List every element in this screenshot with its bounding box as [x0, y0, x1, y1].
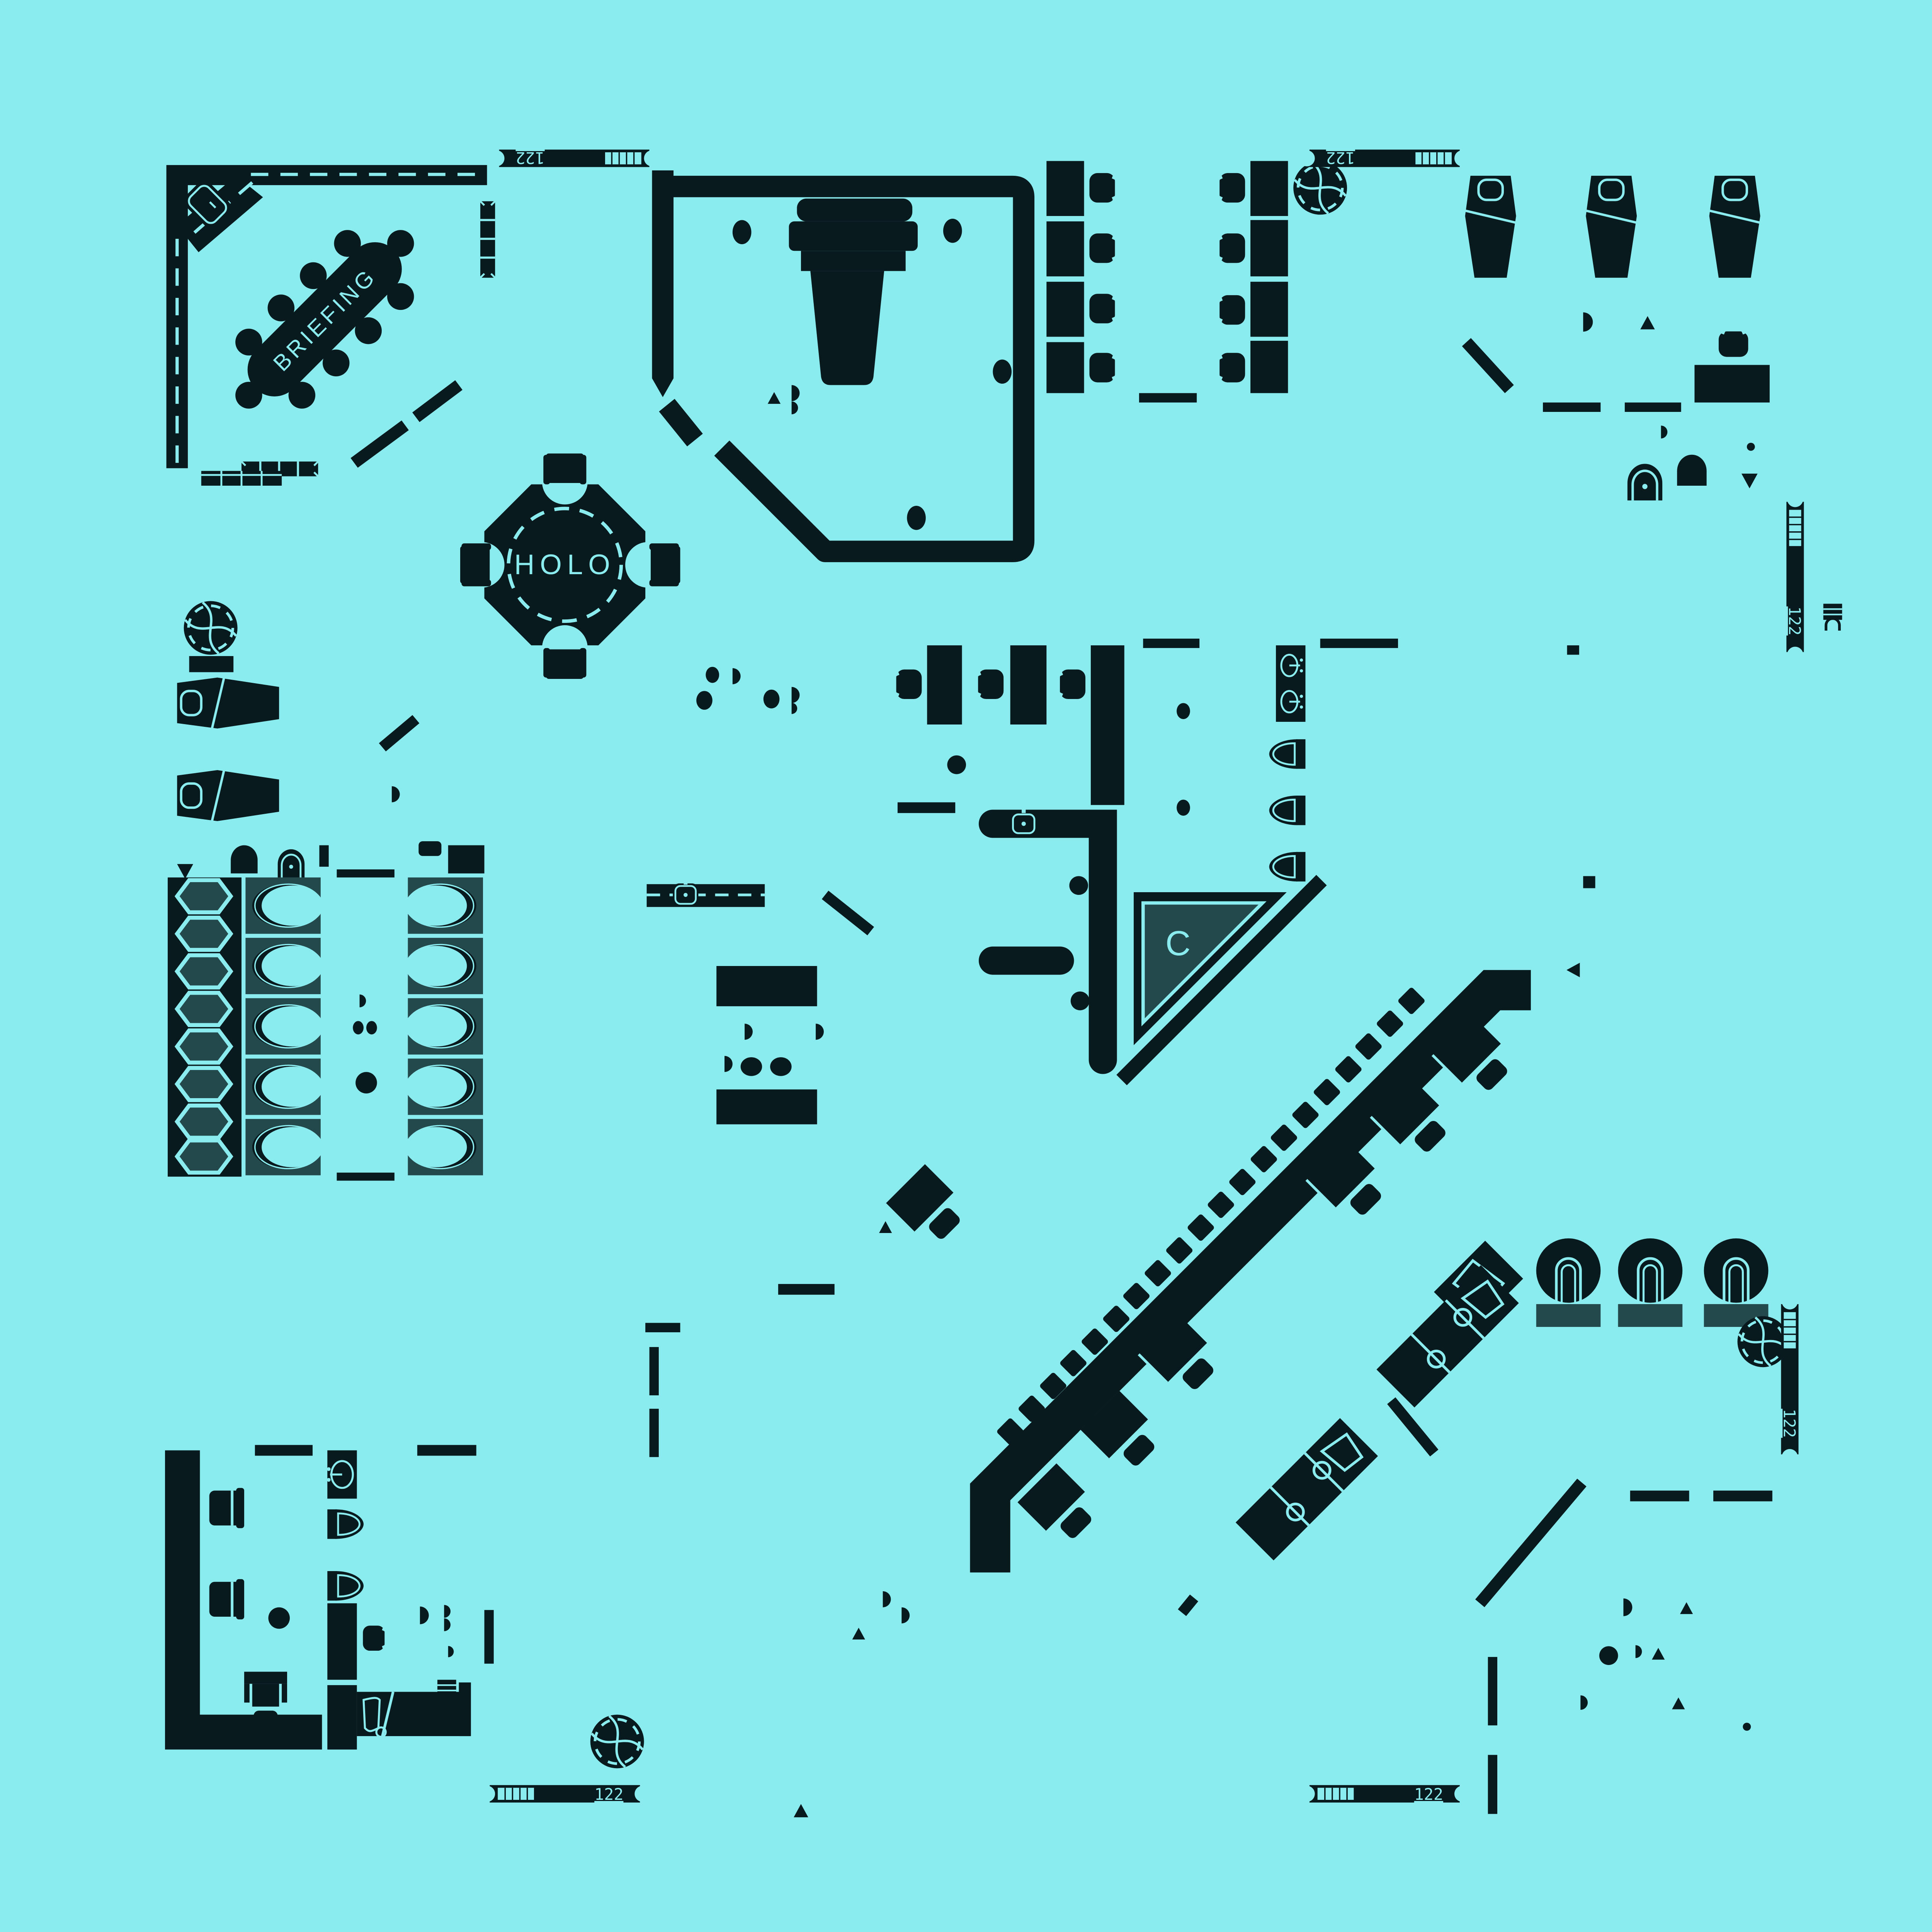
wall-segment: [650, 1409, 659, 1457]
desk-chair: [209, 1488, 244, 1528]
door-marker: 122: [479, 1785, 651, 1804]
door-marker: 122: [488, 148, 660, 167]
dot: [1747, 443, 1755, 451]
toilet: [1628, 464, 1662, 500]
door-marker-label: 122: [594, 1785, 623, 1804]
dot: [1069, 876, 1088, 895]
door-marker: 122: [1299, 1785, 1470, 1804]
wall-stub: [1583, 876, 1595, 888]
door-marker: 122: [1780, 1293, 1799, 1465]
ball: [1293, 161, 1347, 215]
dot: [1071, 992, 1090, 1010]
wall-segment: [1139, 393, 1197, 402]
bunk-column-right: [405, 878, 483, 1175]
ball: [1738, 1316, 1789, 1367]
desk: [1010, 645, 1047, 724]
holo-chair-east: [650, 543, 680, 586]
holo-label: HOLO: [514, 549, 616, 580]
table: [716, 966, 817, 1006]
bollard: [1177, 799, 1190, 816]
pod-chairs: [1536, 1238, 1769, 1327]
wall-segment: [778, 1284, 835, 1295]
lounge-left-wall: [652, 170, 674, 397]
wall-segment: [1625, 403, 1681, 412]
dot: [947, 755, 966, 774]
door-marker-label: 122: [1326, 148, 1355, 167]
door-marker-label: 122: [1780, 1409, 1799, 1438]
sleep-pod: [1465, 176, 1516, 278]
door-marker: 122: [1785, 491, 1804, 663]
ball: [590, 1715, 644, 1769]
dot: [733, 220, 752, 244]
door-marker-label: 122: [515, 148, 544, 167]
bollard: [1177, 703, 1190, 719]
desk: [1694, 365, 1769, 402]
wall-segment: [898, 802, 955, 813]
wall-segment: [1543, 403, 1600, 412]
shelf-rack: [480, 201, 495, 278]
wall-segment: [1143, 639, 1199, 648]
holo-chair-south: [543, 648, 586, 679]
desk-chair: [209, 1579, 244, 1619]
sleep-pod: [1709, 176, 1760, 278]
sleep-pod: [177, 677, 279, 728]
wall-segment: [1320, 639, 1398, 648]
bunk-column-left: [245, 878, 323, 1175]
sleep-pod: [177, 770, 279, 821]
dot: [943, 219, 962, 243]
holo-chair-west: [460, 543, 491, 586]
desk: [927, 645, 962, 724]
wall-segment: [1567, 645, 1579, 655]
ball: [184, 601, 238, 655]
wall: [1091, 645, 1124, 805]
door-marker-label: 122: [1414, 1785, 1443, 1804]
toilet: [1677, 455, 1706, 486]
door-marker-label: 122: [1785, 606, 1804, 635]
wall-segment: [645, 1323, 680, 1332]
sleep-pod: [1586, 176, 1637, 278]
dot: [907, 506, 926, 530]
holo-chair-north: [543, 454, 586, 485]
door-marker: 122: [1299, 148, 1470, 167]
stool: [268, 1607, 290, 1629]
floorplan: BRIEFING HOLO: [0, 0, 1932, 1932]
stool: [355, 1072, 377, 1094]
room-c-label: C: [1165, 924, 1190, 963]
wall-segment: [650, 1347, 659, 1395]
dot: [993, 360, 1012, 384]
ball-base: [189, 656, 234, 672]
wall-segment: [484, 1610, 493, 1664]
table: [716, 1089, 817, 1124]
